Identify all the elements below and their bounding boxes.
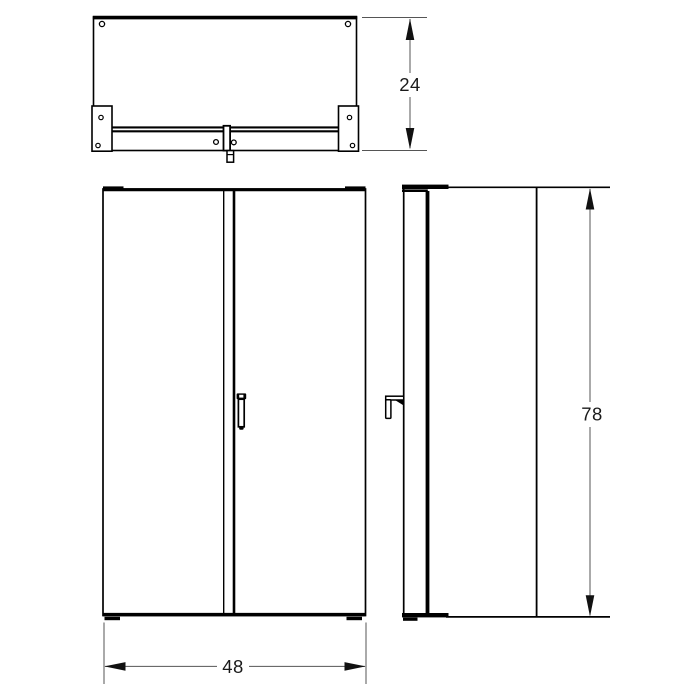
dimension-height-label: 78 <box>581 404 603 425</box>
dimension-width-label: 48 <box>222 656 244 677</box>
technical-drawing-canvas: 24 <box>0 0 700 700</box>
side-view <box>386 185 610 621</box>
top-left-cap <box>103 186 124 190</box>
side-handle-grip <box>386 400 391 419</box>
cabinet-orthographic-drawing: 24 <box>0 0 700 700</box>
center-latch-bar <box>224 126 231 151</box>
side-top-lip <box>402 185 449 189</box>
handle-tip <box>239 427 243 430</box>
side-handle-bracket <box>395 400 404 406</box>
front-view <box>103 186 366 620</box>
dimension-width: 48 <box>104 623 366 685</box>
right-hinge-bracket <box>339 106 359 151</box>
dimension-depth: 24 <box>362 18 427 151</box>
arrowhead-up <box>586 188 595 209</box>
top-right-cap <box>345 186 366 190</box>
arrowhead-left <box>104 662 125 671</box>
left-foot <box>105 617 121 620</box>
screw-hole <box>345 21 350 26</box>
screw-hole <box>96 143 100 147</box>
latch-screw-hole <box>231 140 236 145</box>
right-foot <box>347 617 363 620</box>
side-bottom-bar <box>402 613 449 617</box>
dimension-depth-label: 24 <box>399 74 421 95</box>
top-view <box>92 17 359 162</box>
screw-hole <box>347 115 351 119</box>
arrowhead-right <box>345 662 366 671</box>
handle-lever <box>238 399 244 427</box>
screw-hole <box>350 143 354 147</box>
lock-tab <box>227 151 234 163</box>
dimension-height: 78 <box>581 188 603 616</box>
arrowhead-up <box>406 19 415 40</box>
latch-screw-hole <box>214 140 219 145</box>
side-foot <box>403 618 418 621</box>
handle-mount-slot <box>239 395 243 398</box>
side-door-top-bar <box>402 189 428 192</box>
arrowhead-down <box>586 595 595 616</box>
screw-hole <box>99 21 104 26</box>
arrowhead-down <box>406 128 415 149</box>
screw-hole <box>99 115 103 119</box>
left-hinge-bracket <box>92 106 112 151</box>
